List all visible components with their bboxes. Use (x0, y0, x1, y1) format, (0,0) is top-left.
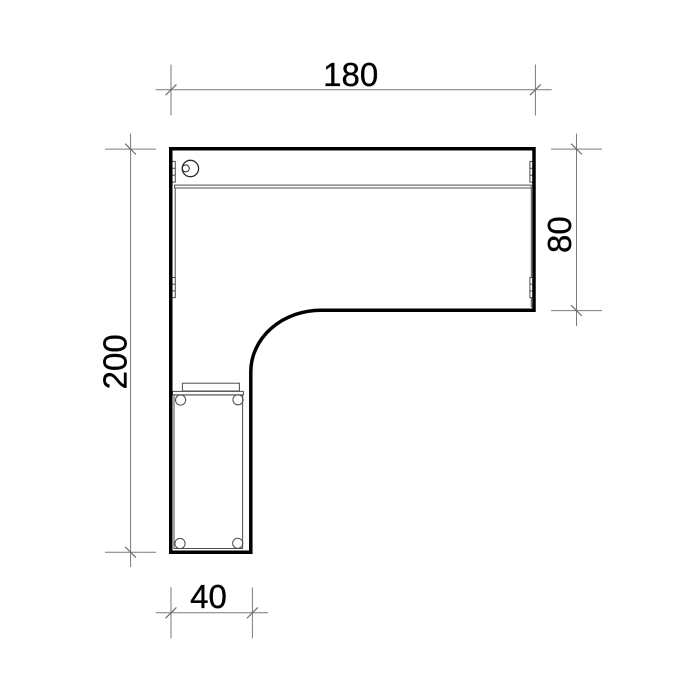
svg-text:200: 200 (97, 334, 134, 389)
svg-text:80: 80 (541, 216, 578, 253)
svg-text:180: 180 (323, 56, 378, 93)
svg-text:40: 40 (190, 578, 227, 615)
